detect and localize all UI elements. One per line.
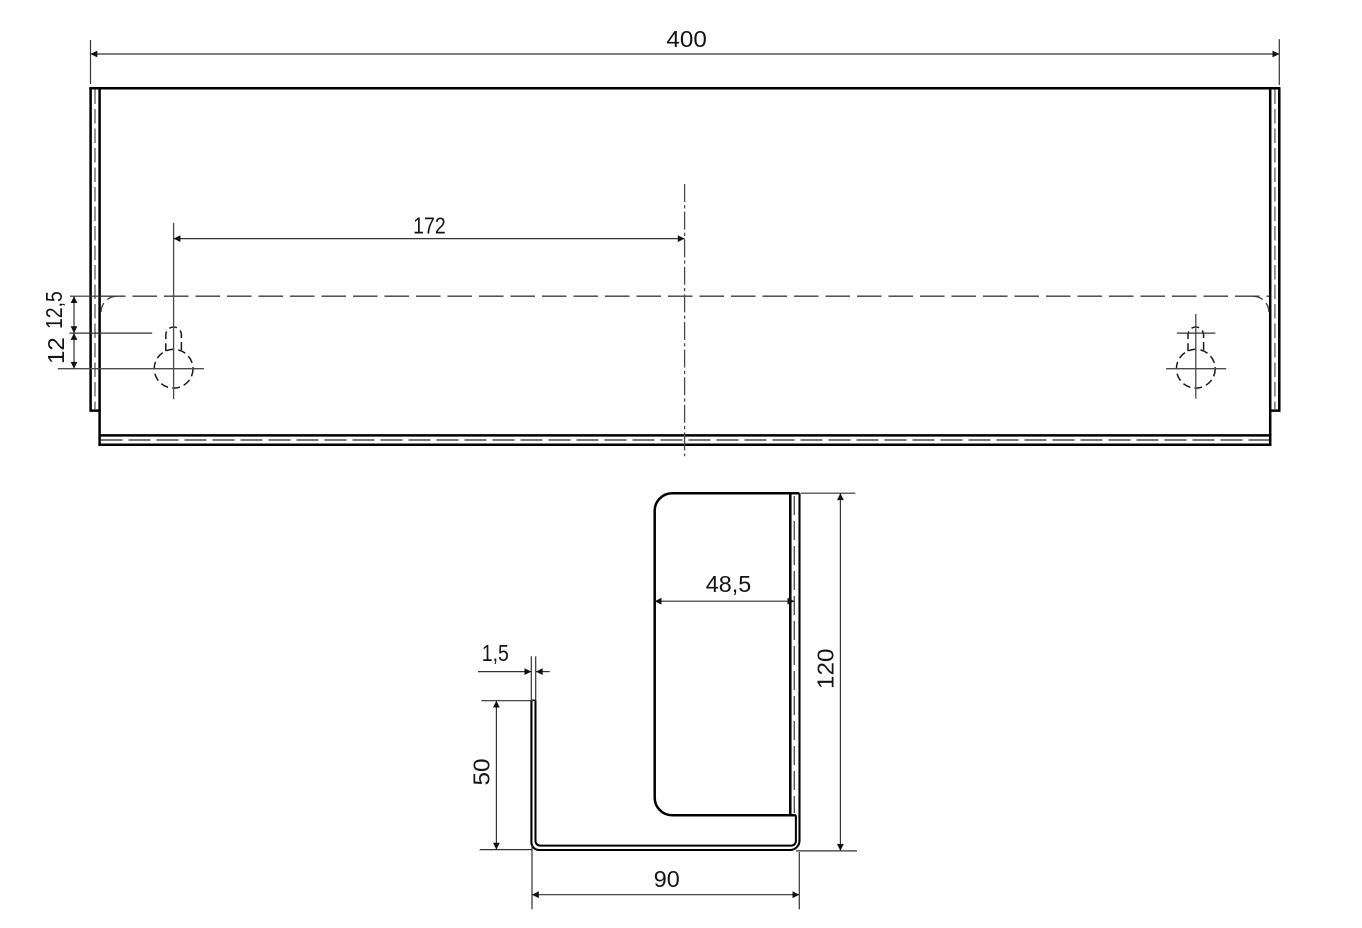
svg-text:1,5: 1,5 [482, 640, 509, 666]
svg-text:400: 400 [666, 26, 706, 52]
svg-text:120: 120 [812, 649, 838, 690]
svg-text:12,5: 12,5 [41, 291, 67, 329]
svg-text:90: 90 [654, 866, 680, 892]
svg-text:50: 50 [468, 758, 494, 785]
svg-text:48,5: 48,5 [706, 571, 751, 597]
svg-text:172: 172 [413, 212, 446, 238]
svg-text:12: 12 [43, 337, 69, 364]
